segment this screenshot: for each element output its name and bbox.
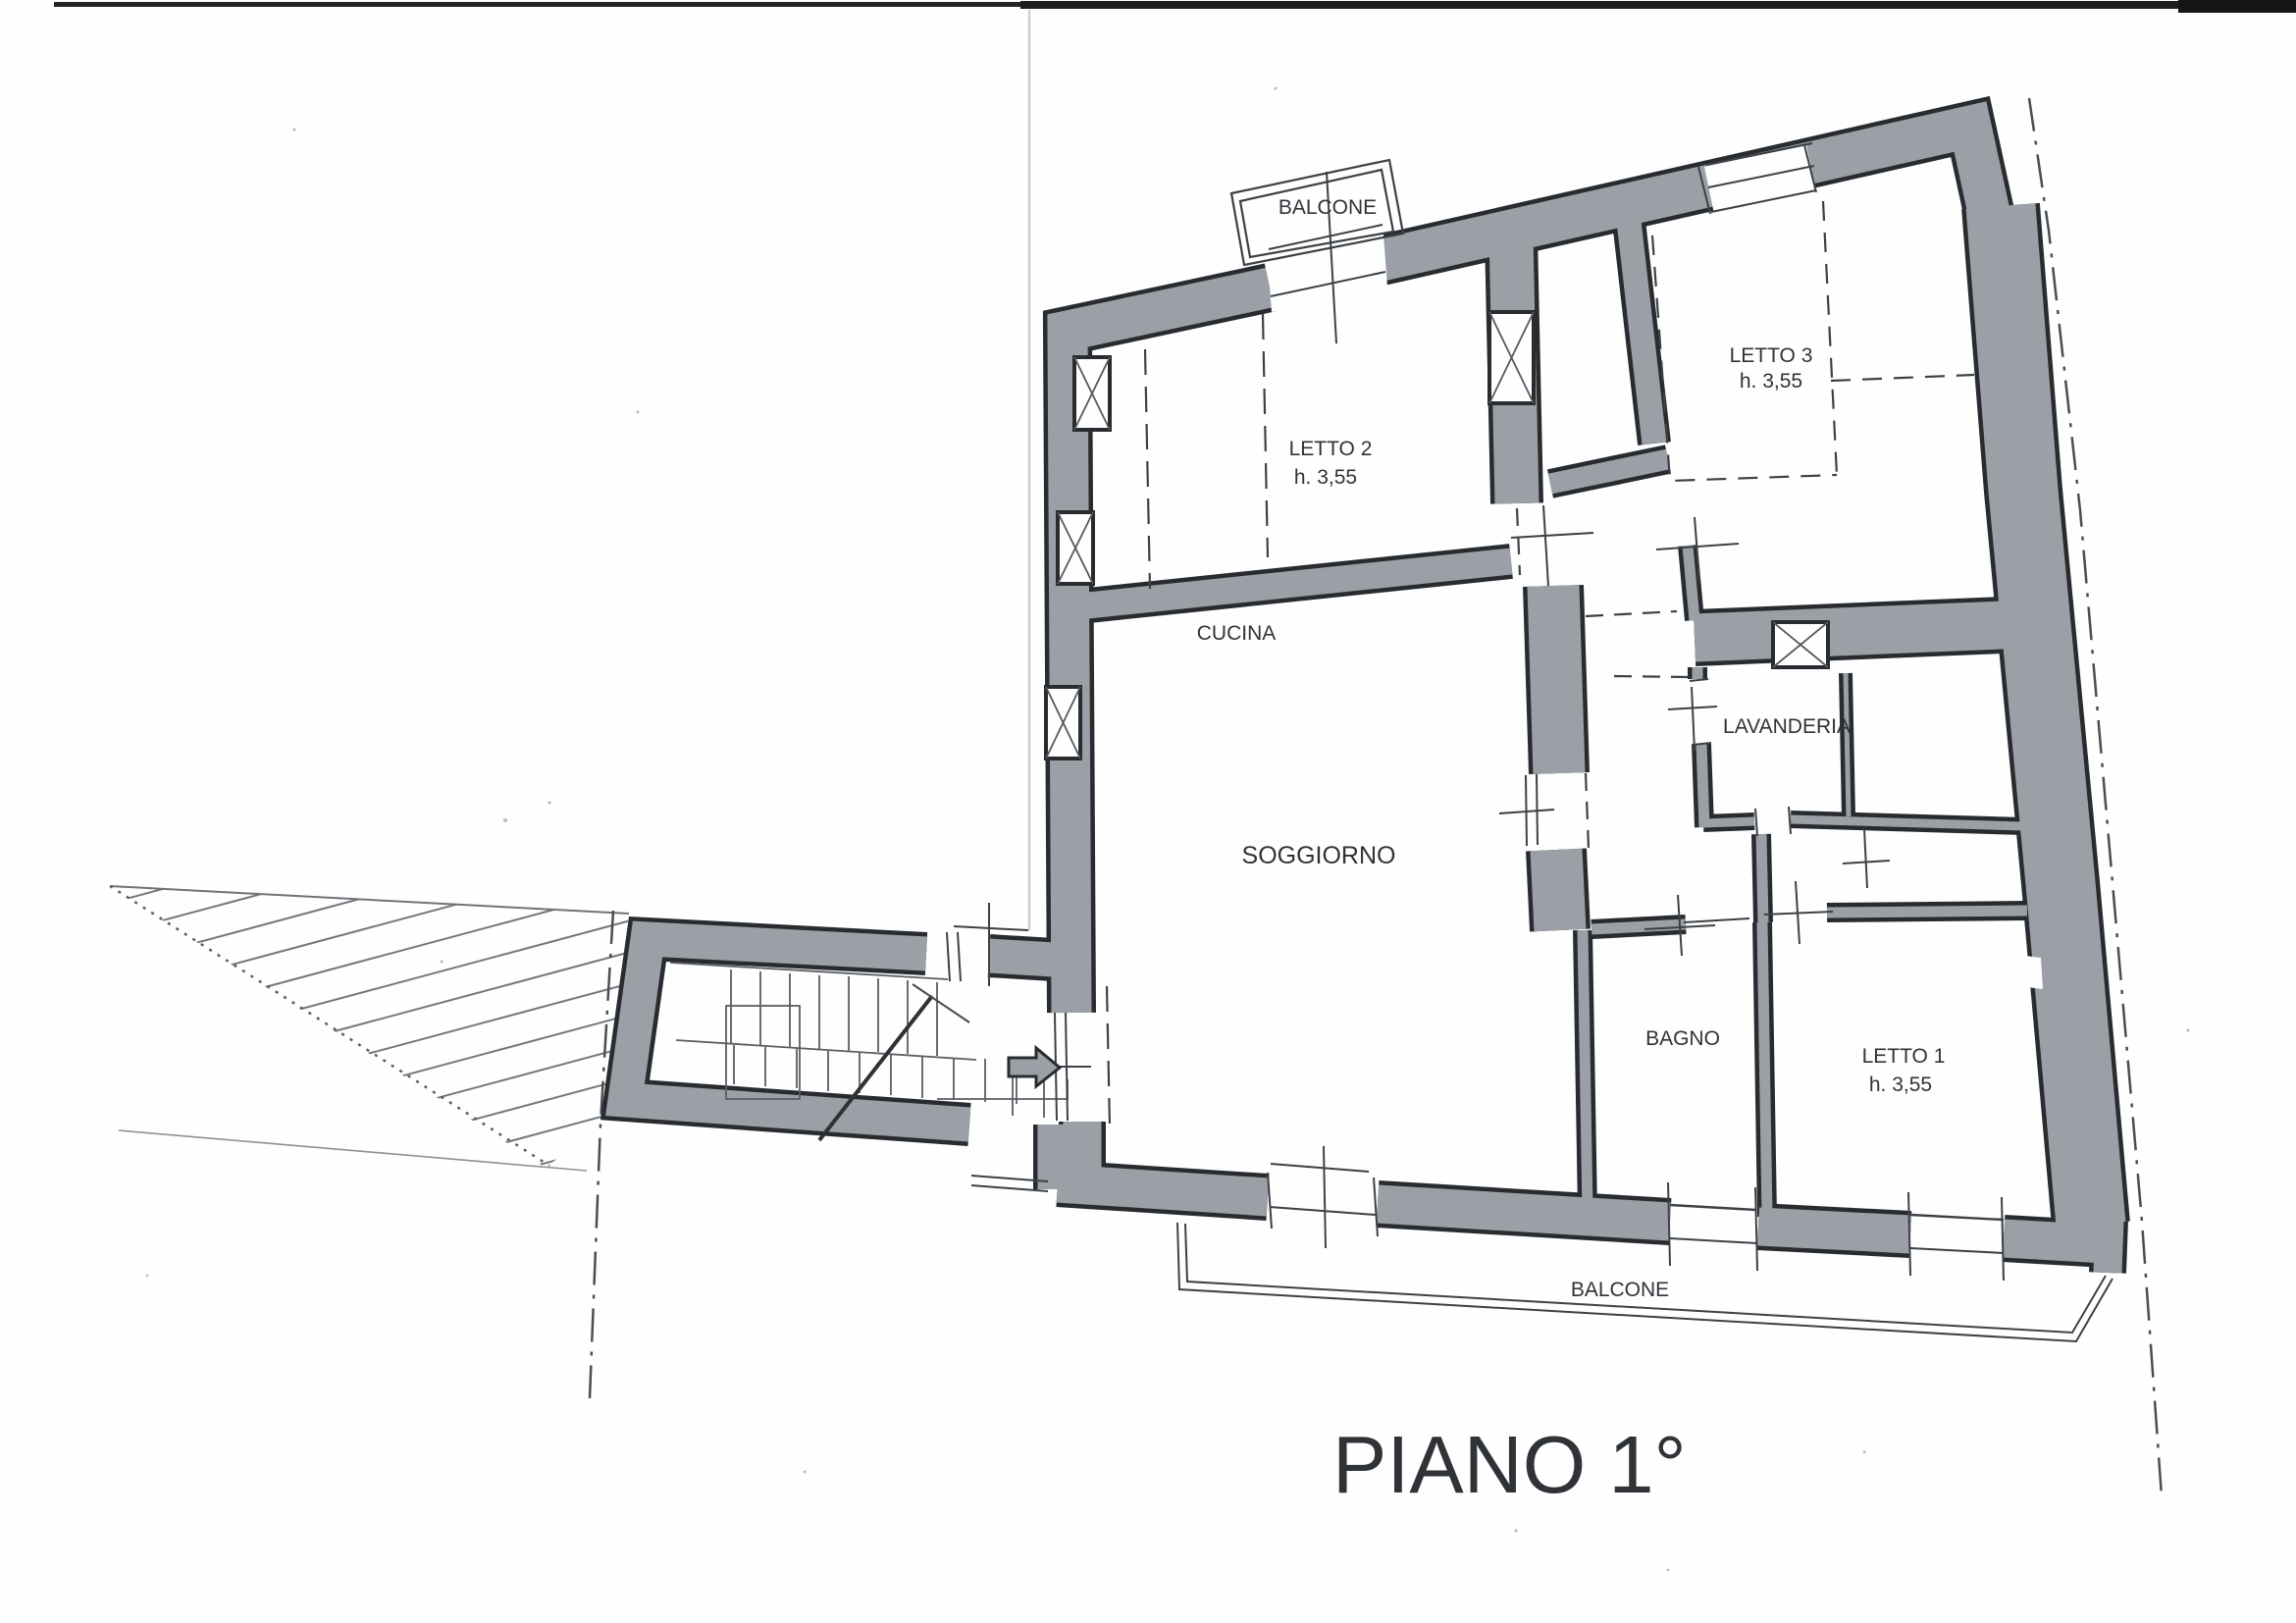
svg-text:BALCONE: BALCONE xyxy=(1278,196,1377,219)
svg-text:BALCONE: BALCONE xyxy=(1571,1279,1669,1301)
svg-text:h. 3,55: h. 3,55 xyxy=(1294,466,1357,489)
svg-text:h. 3,55: h. 3,55 xyxy=(1869,1073,1932,1096)
svg-text:PIANO 1°: PIANO 1° xyxy=(1332,1419,1687,1510)
svg-text:BAGNO: BAGNO xyxy=(1645,1027,1720,1050)
svg-text:h. 3,55: h. 3,55 xyxy=(1740,370,1802,393)
svg-text:CUCINA: CUCINA xyxy=(1197,622,1277,645)
svg-text:SOGGIORNO: SOGGIORNO xyxy=(1242,842,1396,869)
svg-text:LETTO 1: LETTO 1 xyxy=(1862,1045,1946,1068)
svg-text:LETTO 3: LETTO 3 xyxy=(1730,344,1813,367)
svg-text:LETTO 2: LETTO 2 xyxy=(1289,438,1373,460)
svg-text:LAVANDERIA: LAVANDERIA xyxy=(1723,715,1851,738)
